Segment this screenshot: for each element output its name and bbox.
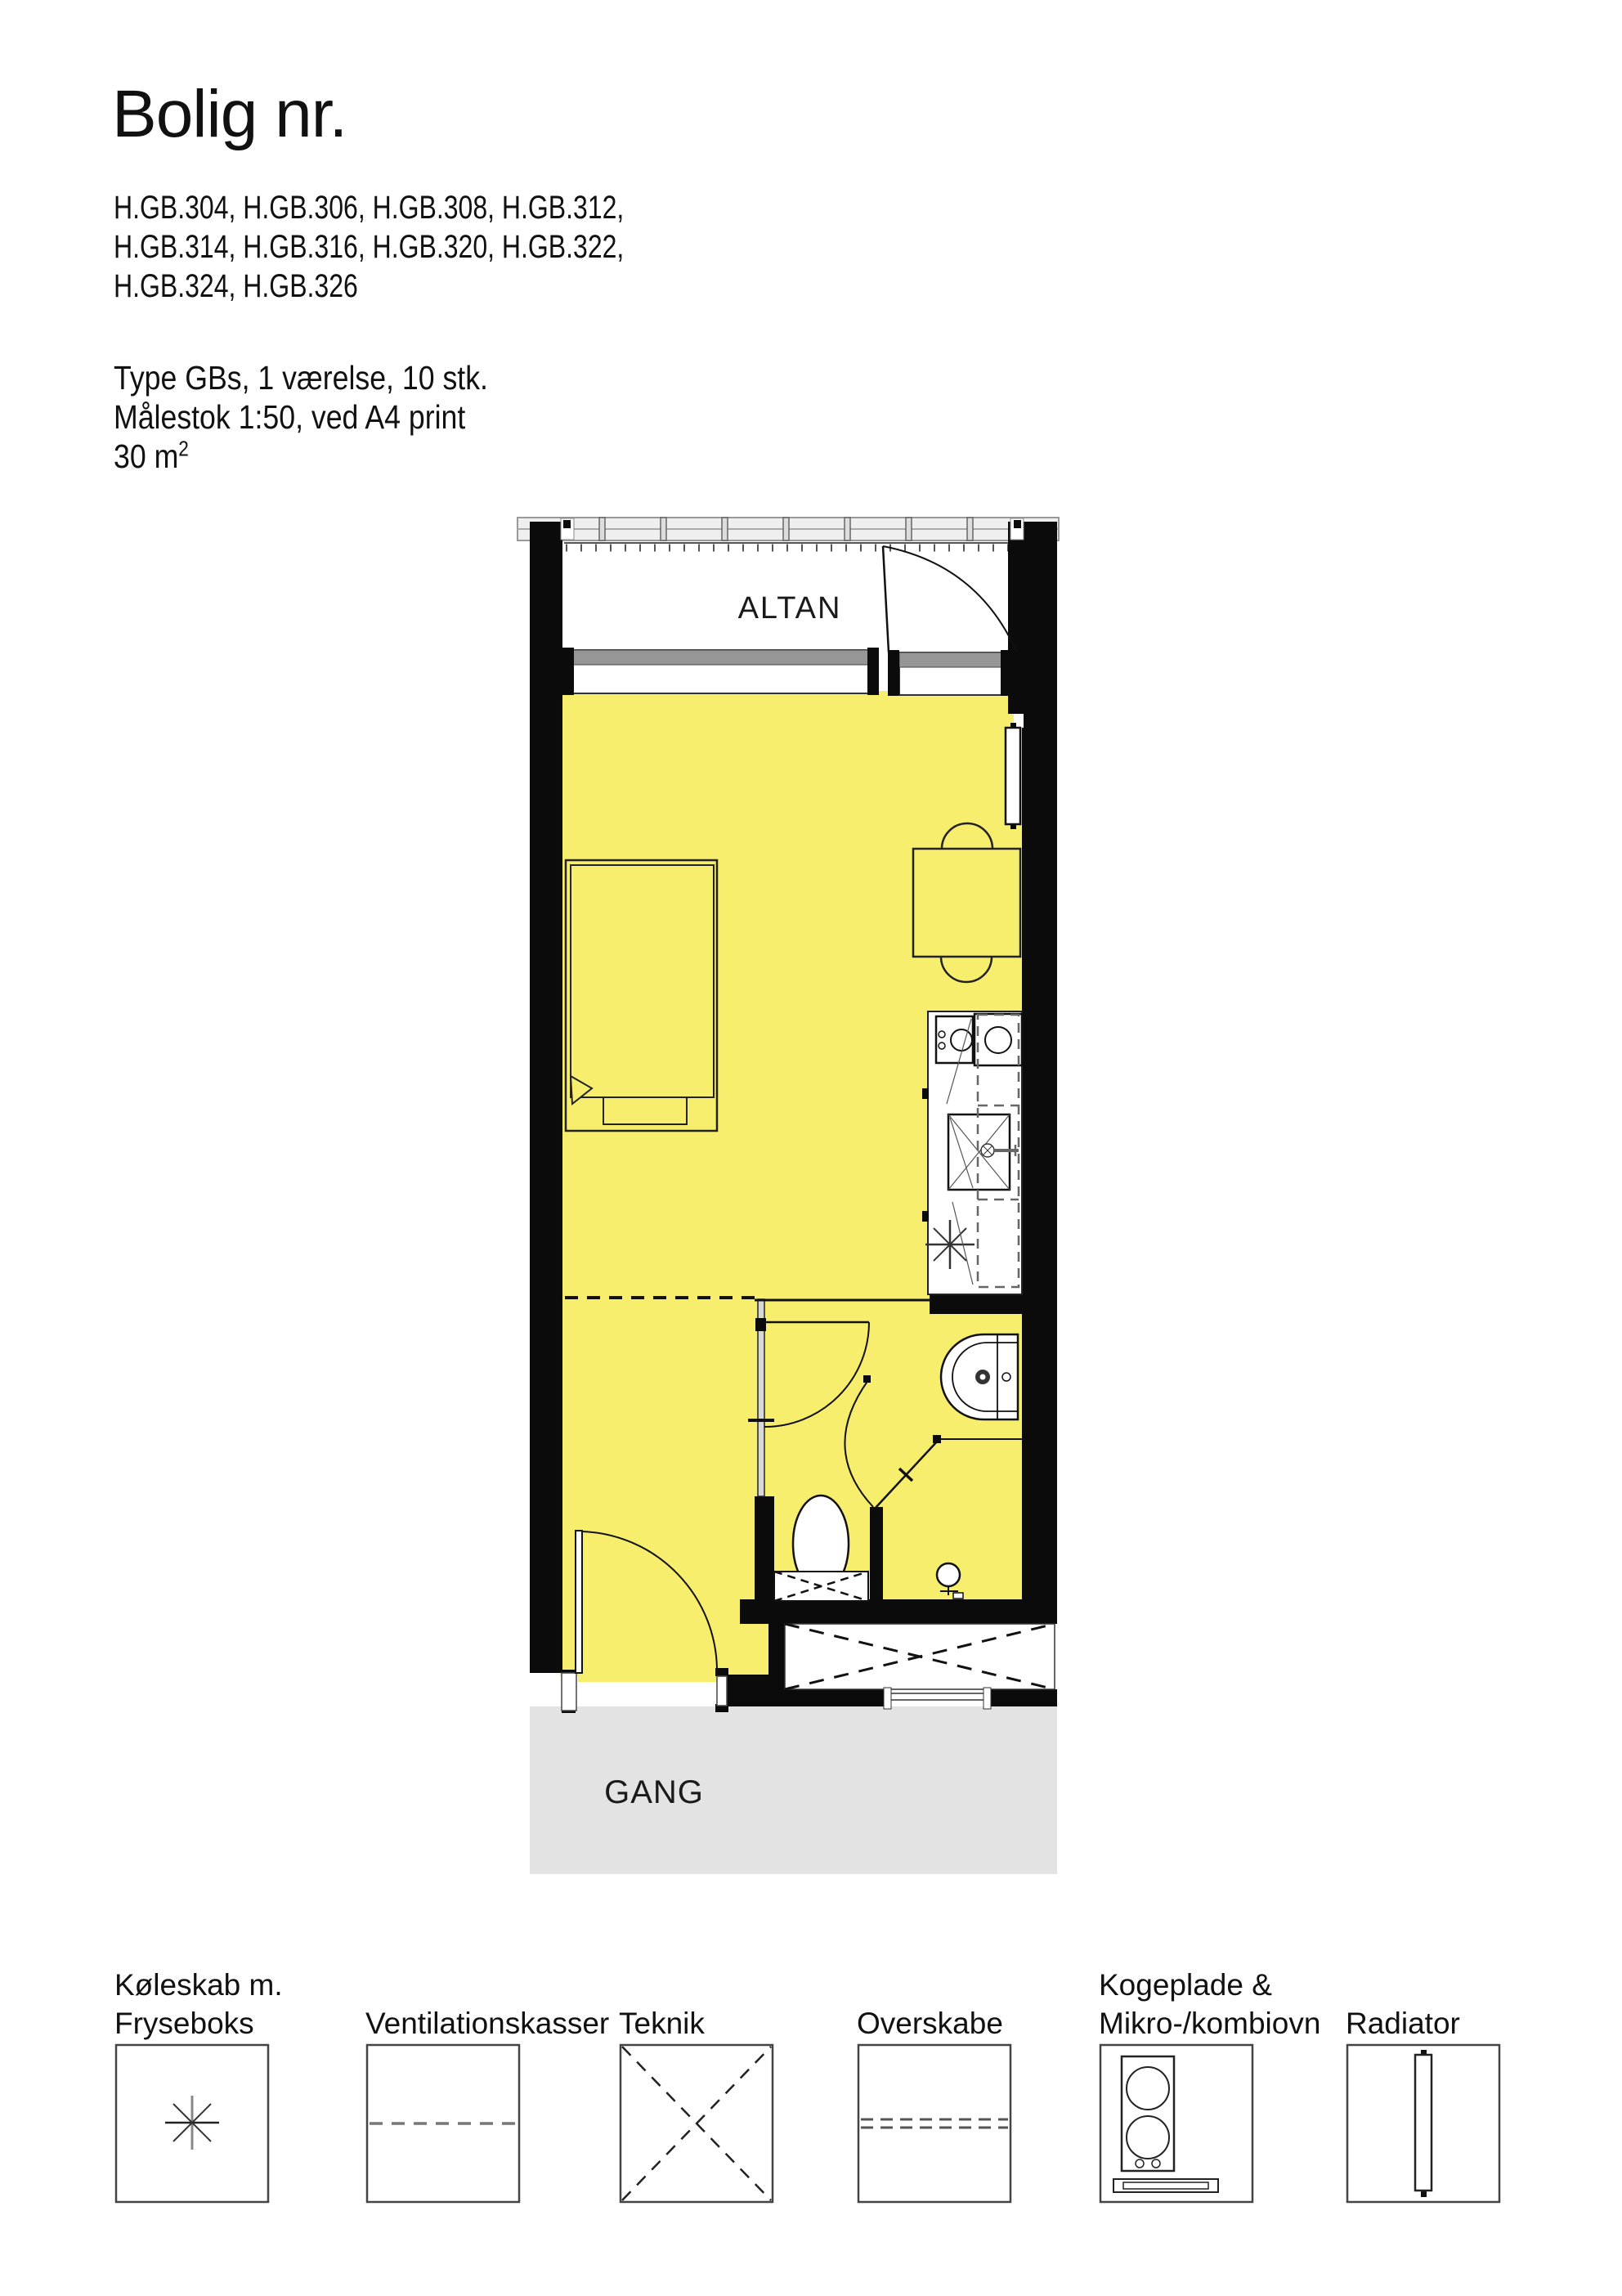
balcony-window-band <box>562 648 1012 696</box>
micro-oven-symbol <box>975 1014 1022 1065</box>
legend-label: Køleskab m. <box>114 1966 286 2004</box>
kitchen-counter <box>922 1011 1022 1294</box>
legend-label: Ventilationskasser <box>365 2004 537 2043</box>
legend-label: Kogeplade & <box>1099 1966 1270 2004</box>
balcony-railing <box>518 518 1059 548</box>
legend-item-ventilation: Ventilationskasser <box>365 1964 537 2204</box>
double-dashed-line-icon <box>857 2043 1012 2204</box>
hallway-label: GANG <box>604 1774 704 1810</box>
ventilation-box <box>774 1572 868 1601</box>
floor-plan-drawing: ALTAN <box>0 0 1622 2296</box>
legend-item-kogeplade: Kogeplade & Mikro-/kombiovn <box>1099 1964 1270 2204</box>
legend-label: Teknik <box>619 2004 791 2043</box>
legend-item-overskabe: Overskabe <box>857 1964 1028 2204</box>
cooktop-symbol <box>936 1016 973 1063</box>
legend-item-fridge: Køleskab m. Fryseboks <box>114 1964 286 2204</box>
dashed-cross-icon <box>619 2043 774 2204</box>
cooktop-micro-oven-icon <box>1099 2043 1254 2204</box>
washbasin <box>941 1334 1018 1419</box>
floor-plan-sheet: Bolig nr. H.GB.304, H.GB.306, H.GB.308, … <box>0 0 1622 2296</box>
balcony-label: ALTAN <box>738 591 842 626</box>
legend-label: Overskabe <box>857 2004 1028 2043</box>
dashed-line-icon <box>365 2043 521 2204</box>
balcony-door <box>883 546 1016 652</box>
radiator <box>1006 723 1020 829</box>
legend-label: Radiator <box>1346 2004 1517 2043</box>
fridge-freezer-asterisk-icon <box>114 2043 270 2204</box>
legend-item-teknik: Teknik <box>619 1964 791 2204</box>
entry-door-leaf <box>576 1531 582 1673</box>
legend-item-radiator: Radiator <box>1346 1964 1517 2204</box>
radiator-icon <box>1346 2043 1501 2204</box>
legend-label: Mikro-/kombiovn <box>1099 2004 1270 2043</box>
legend-label: Fryseboks <box>114 2004 286 2043</box>
